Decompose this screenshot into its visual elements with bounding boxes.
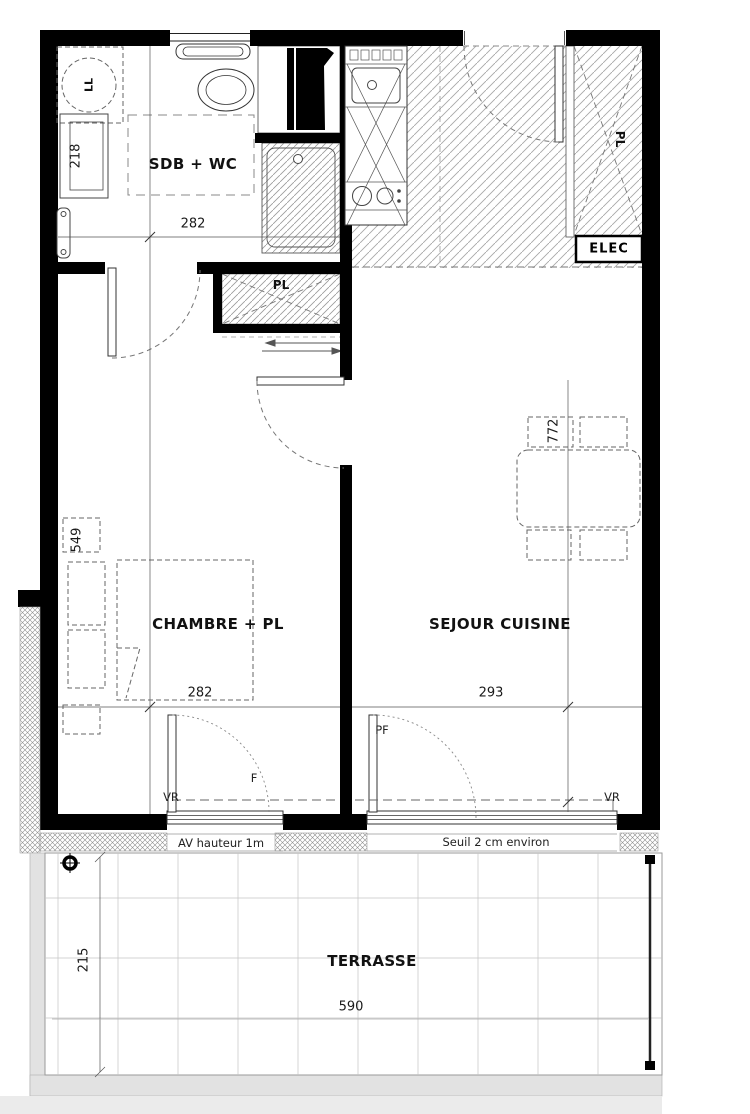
terrasse-depth-dim: 215 [77,948,92,973]
chambre-length-dim: 549 [70,528,85,553]
threshold-note: Seuil 2 cm environ [442,835,549,849]
bathroom-dim-218: 218 [69,144,84,169]
plan-linework [0,0,750,1114]
towel-radiator [57,208,70,258]
door-pf-label: PF [375,723,389,737]
floor-plan: LL 218 SDB + WC 282 PL PL ELEC 772 CHAMB… [0,0,750,1114]
window-height-note: AV hauteur 1m [178,836,264,850]
technical-duct [258,46,340,133]
bathroom-door [108,268,200,358]
chambre-width-dim: 282 [188,686,213,701]
terrace-door-window [367,715,617,824]
toilet [176,44,254,111]
shutter-right-label: VR [604,790,620,804]
room-label-sdb-wc: SDB + WC [149,155,237,173]
shower [262,143,340,253]
living-room-door [257,377,344,468]
terrasse-width-dim: 590 [339,1000,364,1015]
sejour-width-dim: 293 [479,686,504,701]
window-f-label: F [251,771,258,785]
shutter-left-label: VR [163,790,179,804]
kitchen-counter [345,46,407,225]
shutter-lines [172,800,613,811]
washing-machine-label: LL [83,78,96,92]
terrace [0,852,662,1114]
room-label-chambre: CHAMBRE + PL [152,615,284,633]
sliding-door-arrows [262,340,345,354]
hall-closet-label: PL [273,278,289,292]
dining-set [517,417,640,560]
bedroom-window [167,715,283,824]
room-label-sejour: SEJOUR CUISINE [429,615,571,633]
room-label-terrasse: TERRASSE [327,952,417,970]
sdb-width-dim: 282 [181,217,206,232]
entry-closet-label: PL [613,131,627,147]
vanity [60,114,108,198]
sejour-length-dim: 772 [547,419,562,444]
elec-label: ELEC [589,242,629,257]
